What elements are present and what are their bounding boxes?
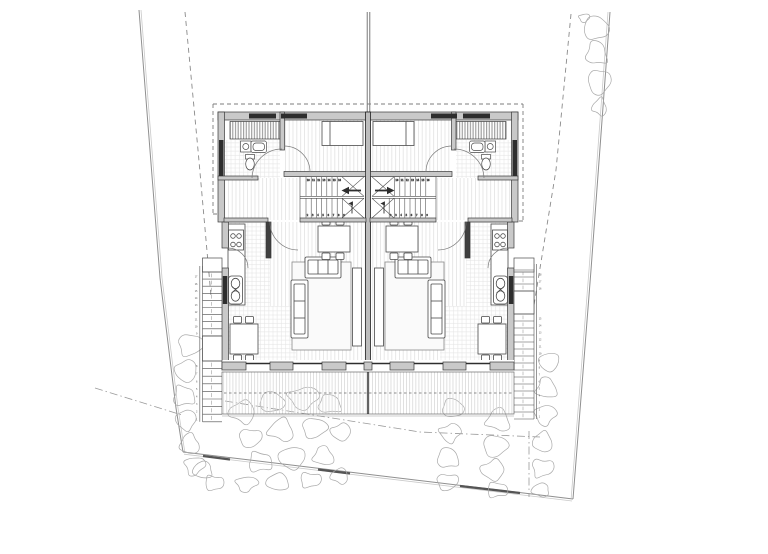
stair-landing	[514, 291, 534, 314]
wall-south-assembly	[222, 360, 514, 372]
tread-number: 14	[195, 297, 198, 300]
chimney-flue-line	[367, 12, 370, 112]
tread-number: 13	[195, 304, 198, 307]
window-north-2	[281, 114, 307, 119]
sofa-left-vertical-seat	[294, 284, 305, 334]
rock	[235, 477, 259, 492]
wall-west-lower-a	[222, 222, 229, 248]
toilet-right-bowl	[482, 158, 491, 170]
terrace-deck	[222, 372, 514, 416]
exterior-stair: 181716151413121110987654321	[514, 258, 542, 419]
rock	[266, 417, 293, 442]
wall-south-seg	[390, 362, 414, 370]
sofa-right-horizontal-seat	[398, 260, 428, 274]
tread-number: 13	[539, 332, 542, 335]
sideboard-right	[375, 268, 384, 346]
shower-left	[230, 122, 280, 140]
rock	[301, 472, 321, 488]
tread-number: 17	[195, 276, 198, 279]
building: 1011121314151623456789101112131415162345…	[213, 12, 523, 372]
tread-number: 2	[196, 411, 198, 414]
rock	[239, 429, 262, 447]
window-north-1	[249, 114, 276, 119]
tread-number: 18	[539, 274, 542, 277]
stair-porch	[203, 258, 223, 272]
tread-number: 9	[196, 332, 198, 335]
rock	[184, 458, 206, 476]
tread-number: 2	[539, 409, 541, 412]
tread-number: 16	[539, 288, 542, 291]
hall-right-south-wall-b	[468, 218, 512, 222]
window-east-lower	[509, 276, 514, 304]
tread-number: 11	[195, 318, 198, 321]
tread-number: 1	[196, 418, 198, 421]
tread-number: 6	[196, 380, 198, 383]
wall-south-seg	[222, 362, 246, 370]
wall-east-lower-a	[508, 222, 515, 248]
window-east-upper	[513, 140, 518, 176]
kitchen-left	[228, 224, 245, 305]
tread-number: 4	[196, 395, 198, 398]
rock	[532, 430, 552, 451]
hall-left-south-wall-b	[300, 218, 366, 222]
hall-right-floor	[436, 178, 512, 220]
cooktop-right	[493, 230, 508, 250]
tread-number: 17	[539, 281, 542, 284]
tread-number: 10	[539, 353, 542, 356]
sofa-left-horizontal-seat	[308, 260, 338, 274]
tread-number: 12	[539, 339, 542, 342]
rock	[266, 473, 289, 490]
window-north-4	[463, 114, 490, 119]
tread-number: 12	[195, 311, 198, 314]
rock	[303, 419, 329, 439]
tread-number: 8	[539, 367, 541, 370]
rock	[534, 406, 557, 427]
hall-right-south-wall-a	[370, 218, 436, 222]
window-west-lower	[223, 276, 228, 304]
wall-south-seg	[443, 362, 466, 370]
rock	[312, 446, 334, 465]
shower-right	[456, 122, 506, 140]
exterior-stair: 1716151413121110987654321	[195, 258, 222, 422]
bed-right	[373, 122, 414, 146]
bedroom-right-south-wall	[371, 172, 453, 177]
washbasin-left	[241, 141, 252, 152]
tread-number: 7	[196, 373, 198, 376]
bed-left	[322, 122, 363, 146]
rock	[532, 459, 554, 478]
rock	[437, 448, 459, 468]
tread-number: 16	[195, 283, 198, 286]
tread-number: 8	[196, 365, 198, 368]
rock	[588, 70, 611, 95]
tread-number: 7	[539, 374, 541, 377]
rock	[179, 335, 205, 357]
washbasin-right	[485, 141, 496, 152]
rock	[480, 458, 504, 481]
hall-left-south-wall-a	[224, 218, 268, 222]
wall-south-seg	[490, 362, 514, 370]
sofa-right-vertical-seat	[431, 284, 442, 334]
rock	[538, 353, 558, 372]
rock	[330, 423, 351, 441]
floor-plan-screenshot: 1011121314151623456789101112131415162345…	[0, 0, 768, 554]
bedroom-left-south-wall	[284, 172, 366, 177]
tread-number: 3	[196, 403, 198, 406]
stair-landing	[203, 336, 223, 361]
tread-number: 5	[539, 388, 541, 391]
rock	[591, 97, 606, 116]
tread-number: 5	[196, 388, 198, 391]
wall-south-seg	[364, 362, 372, 370]
floor-plan-canvas: 1011121314151623456789101112131415162345…	[0, 0, 768, 554]
tread-number: 14	[539, 325, 542, 328]
window-west-upper	[219, 140, 224, 176]
wall-south-seg	[322, 362, 346, 370]
tread-number: 10	[195, 325, 198, 328]
party-wall	[366, 112, 371, 362]
sideboard-left	[353, 268, 362, 346]
wall-south-seg	[270, 362, 293, 370]
tread-number: 1	[539, 416, 541, 419]
tread-number: 3	[539, 402, 541, 405]
window-north-3	[431, 114, 457, 119]
rock	[174, 360, 196, 383]
hall-left-floor	[224, 178, 300, 220]
kitchen-right	[491, 224, 508, 305]
tread-number: 11	[539, 346, 542, 349]
tread-number: 15	[539, 318, 542, 321]
rock	[484, 436, 509, 458]
toilet-left-bowl	[246, 158, 255, 170]
tread-number: 9	[539, 360, 541, 363]
cooktop-left	[229, 230, 244, 250]
tread-number: 15	[195, 290, 198, 293]
